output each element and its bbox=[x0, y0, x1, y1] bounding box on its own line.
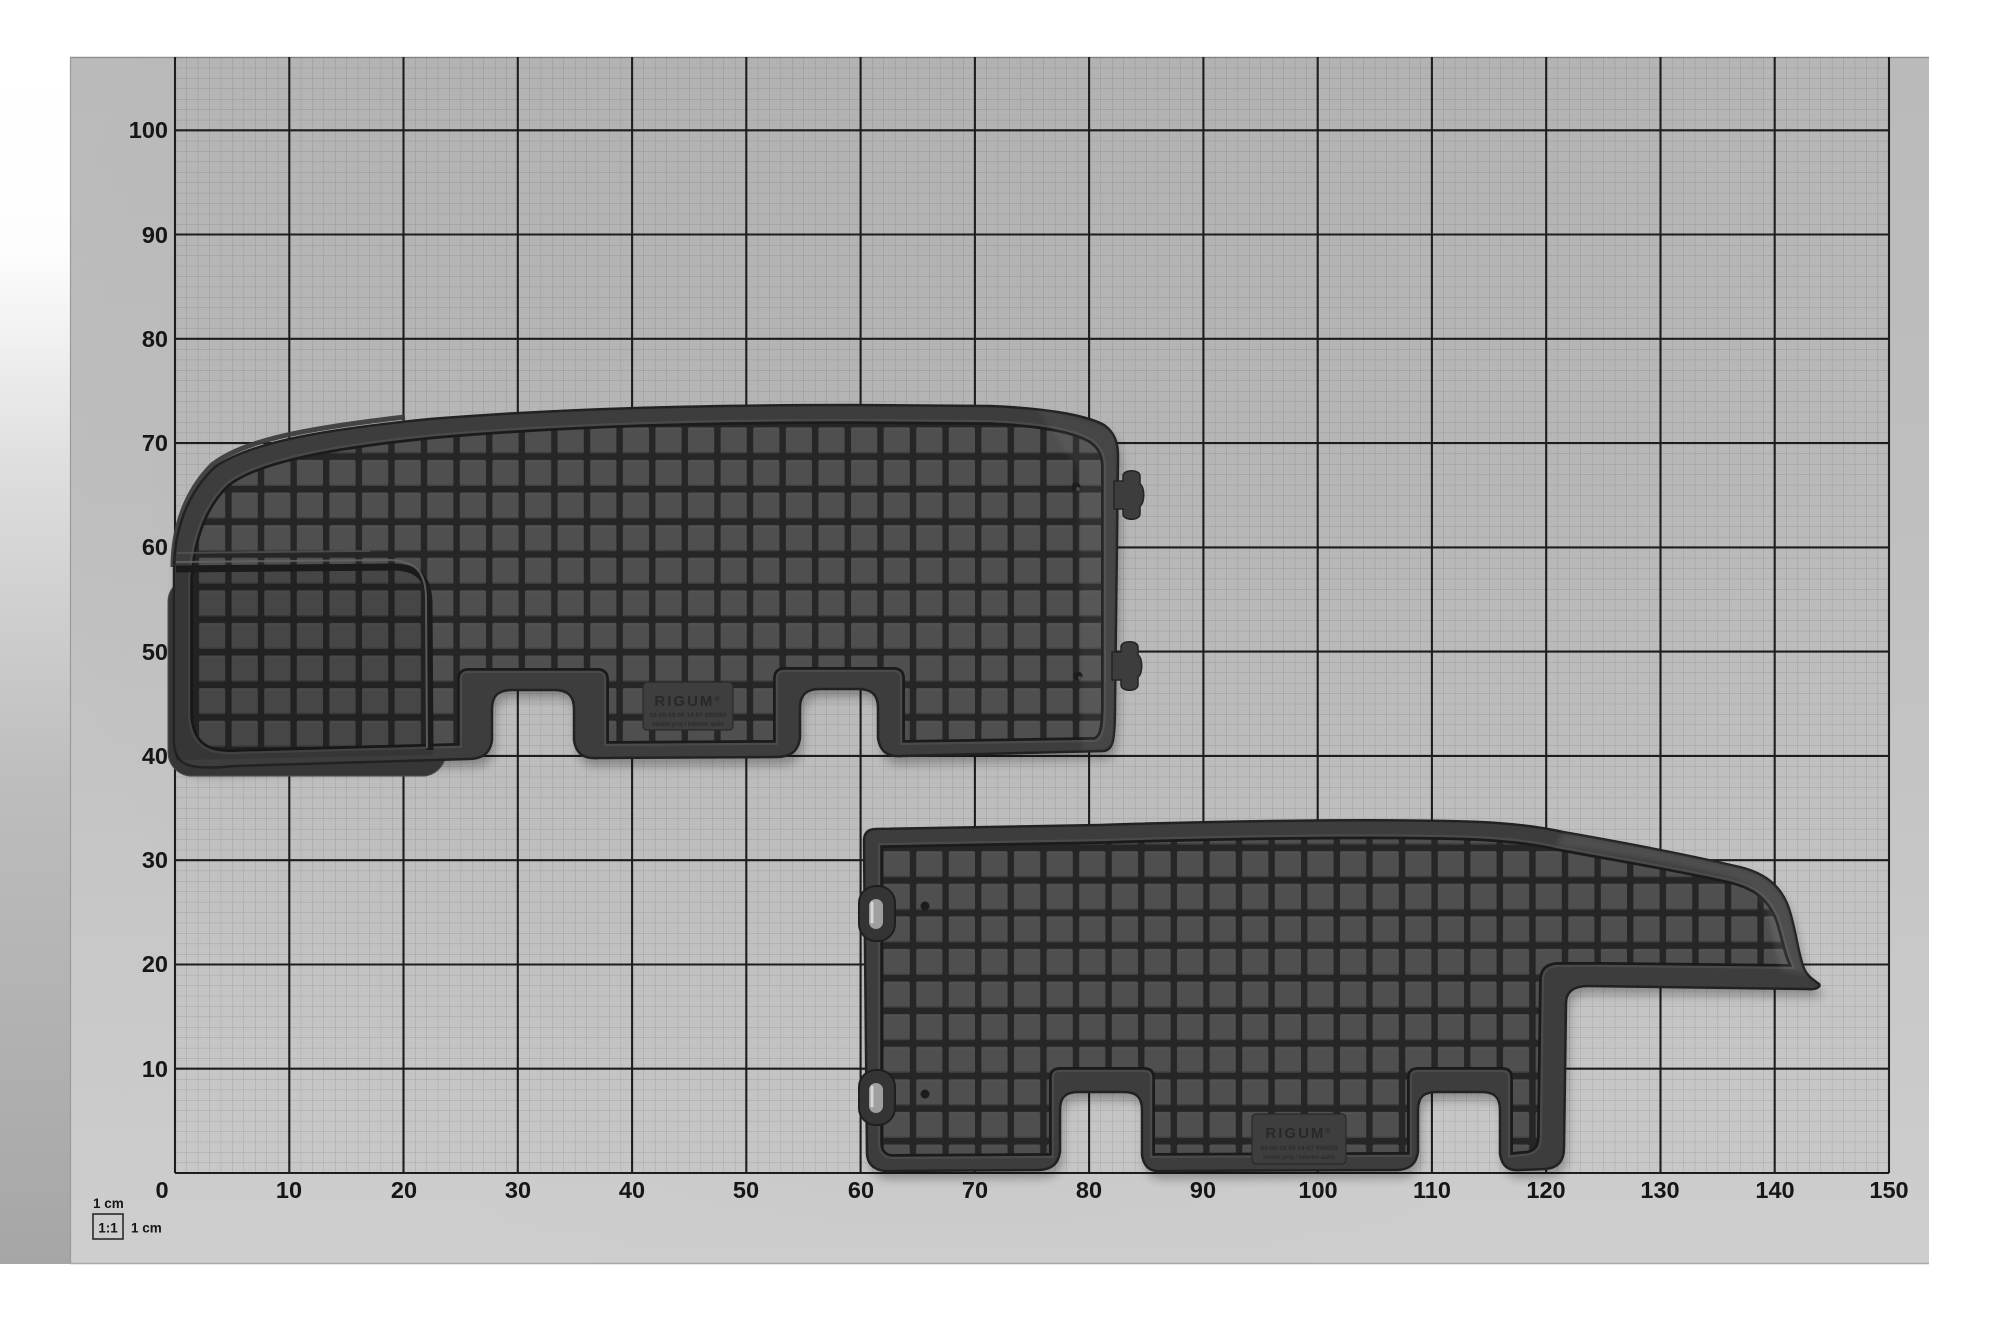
svg-text:30: 30 bbox=[505, 1177, 531, 1203]
svg-text:140: 140 bbox=[1755, 1177, 1794, 1203]
svg-text:0: 0 bbox=[155, 1177, 168, 1203]
svg-text:100: 100 bbox=[129, 117, 168, 143]
svg-text:60: 60 bbox=[142, 534, 168, 560]
svg-text:120: 120 bbox=[1526, 1177, 1565, 1203]
svg-text:model proj / interior autiv: model proj / interior autiv bbox=[652, 722, 725, 728]
svg-text:1:1: 1:1 bbox=[98, 1221, 118, 1236]
svg-text:130: 130 bbox=[1640, 1177, 1679, 1203]
svg-text:10: 10 bbox=[142, 1056, 168, 1082]
svg-text:100: 100 bbox=[1298, 1177, 1337, 1203]
svg-text:80: 80 bbox=[142, 326, 168, 352]
svg-text:90: 90 bbox=[1190, 1177, 1216, 1203]
svg-text:40: 40 bbox=[619, 1177, 645, 1203]
svg-text:50: 50 bbox=[142, 639, 168, 665]
svg-text:20: 20 bbox=[142, 951, 168, 977]
svg-text:40: 40 bbox=[142, 743, 168, 769]
svg-text:20: 20 bbox=[391, 1177, 417, 1203]
svg-text:RIGUM®: RIGUM® bbox=[654, 693, 721, 710]
svg-text:RIGUM®: RIGUM® bbox=[1265, 1125, 1332, 1142]
svg-text:1 cm: 1 cm bbox=[131, 1221, 162, 1236]
svg-text:80: 80 bbox=[1076, 1177, 1102, 1203]
svg-text:110: 110 bbox=[1413, 1177, 1451, 1203]
svg-text:90: 90 bbox=[142, 222, 168, 248]
svg-text:1 cm: 1 cm bbox=[93, 1196, 124, 1211]
svg-text:model proj / interior autiv: model proj / interior autiv bbox=[1263, 1155, 1336, 1161]
svg-text:60: 60 bbox=[848, 1177, 874, 1203]
svg-text:03-06-19 05 14-07 096050: 03-06-19 05 14-07 096050 bbox=[650, 712, 727, 719]
svg-text:70: 70 bbox=[142, 430, 168, 456]
svg-text:70: 70 bbox=[962, 1177, 988, 1203]
svg-text:10: 10 bbox=[276, 1177, 302, 1203]
svg-text:150: 150 bbox=[1869, 1177, 1908, 1203]
svg-text:03-06-19 05 14-07 096050: 03-06-19 05 14-07 096050 bbox=[1261, 1145, 1338, 1152]
svg-text:30: 30 bbox=[142, 847, 168, 873]
svg-text:50: 50 bbox=[733, 1177, 759, 1203]
